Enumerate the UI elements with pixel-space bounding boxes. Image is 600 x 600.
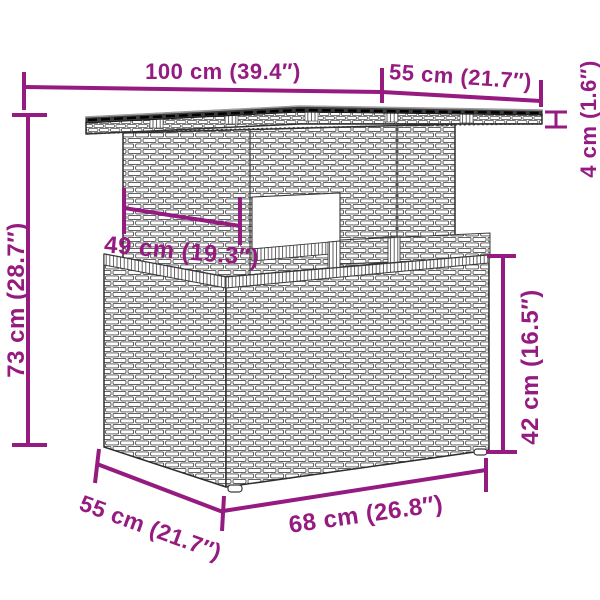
dim-top-thickness-label: 4 cm (1.6″) — [576, 60, 600, 178]
base-box-left-face — [104, 254, 226, 487]
table-illustration — [86, 106, 542, 492]
dim-base-height-label: 42 cm (16.5″) — [517, 289, 544, 444]
rim-strap — [150, 119, 163, 128]
dim-overall-height-label: 73 cm (28.7″) — [3, 222, 30, 377]
pedestal-post — [388, 237, 400, 263]
dim-top-depth-label: 55 cm (21.7″) — [388, 59, 532, 94]
furniture-dimension-diagram: 100 cm (39.4″) 55 cm (21.7″) 4 cm (1.6″)… — [0, 0, 600, 600]
rim-strap — [305, 112, 318, 121]
dim-top-length-label: 100 cm (39.4″) — [145, 59, 301, 84]
base-box — [104, 254, 489, 492]
rim-strap — [225, 115, 238, 124]
pedestal-opening — [252, 193, 340, 249]
dimension-tick — [222, 496, 224, 531]
rim-strap — [460, 114, 473, 123]
base-box-right-face — [226, 255, 489, 487]
dimension-diagram-canvas: 100 cm (39.4″) 55 cm (21.7″) 4 cm (1.6″)… — [0, 0, 600, 600]
table-foot — [228, 485, 242, 492]
dim-base-depth-label: 55 cm (21.7″) — [76, 490, 225, 565]
dimension-tick — [95, 449, 99, 483]
table-foot — [474, 449, 487, 455]
dim-line-top-depth — [382, 92, 541, 101]
dim-line-top-length — [24, 87, 382, 92]
pedestal-post — [328, 241, 340, 269]
dim-bracket-top-thickness — [545, 112, 567, 127]
rim-strap — [385, 113, 398, 122]
